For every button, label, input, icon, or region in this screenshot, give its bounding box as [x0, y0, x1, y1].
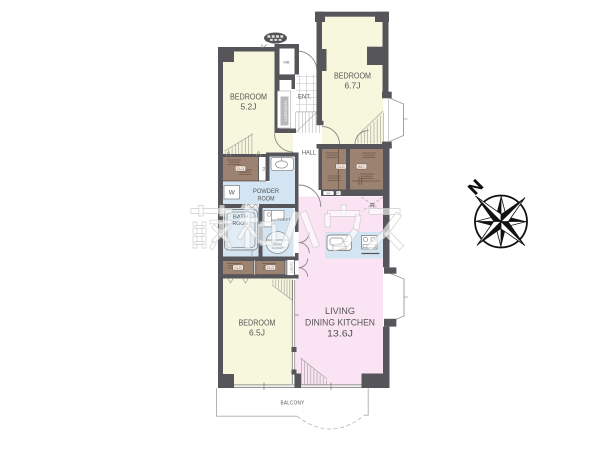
svg-text:POWDER: POWDER	[253, 189, 280, 195]
svg-text:SHOESBOX: SHOESBOX	[284, 100, 288, 122]
svg-text:HALL: HALL	[302, 151, 317, 157]
svg-text:BALCONY: BALCONY	[281, 401, 305, 407]
svg-text:BEDROOM: BEDROOM	[239, 319, 276, 328]
svg-text:MB: MB	[284, 60, 290, 65]
svg-text:6.5J: 6.5J	[249, 329, 265, 338]
svg-text:13.6J: 13.6J	[327, 329, 353, 340]
svg-text:CLO: CLO	[337, 165, 345, 169]
svg-text:ENT.: ENT.	[298, 95, 311, 101]
svg-text:WIC: WIC	[358, 165, 366, 169]
svg-text:BEDROOM: BEDROOM	[230, 93, 267, 102]
svg-text:P: P	[337, 191, 339, 195]
svg-text:ROOM: ROOM	[258, 197, 275, 203]
svg-text:TOILET: TOILET	[278, 217, 292, 222]
svg-text:CLO: CLO	[234, 266, 242, 270]
svg-text:DINING KITCHEN: DINING KITCHEN	[305, 318, 375, 329]
svg-text:CLO: CLO	[267, 266, 275, 270]
svg-text:6.7J: 6.7J	[345, 82, 361, 91]
svg-text:CLO: CLO	[237, 167, 245, 171]
svg-text:SB: SB	[326, 191, 330, 195]
svg-text:LIVING: LIVING	[325, 306, 355, 317]
svg-text:CLOSET: CLOSET	[290, 262, 294, 273]
svg-text:W: W	[229, 190, 236, 197]
svg-text:5.2J: 5.2J	[241, 103, 257, 112]
svg-text:PS: PS	[262, 167, 266, 171]
svg-text:BEDROOM: BEDROOM	[334, 72, 371, 81]
